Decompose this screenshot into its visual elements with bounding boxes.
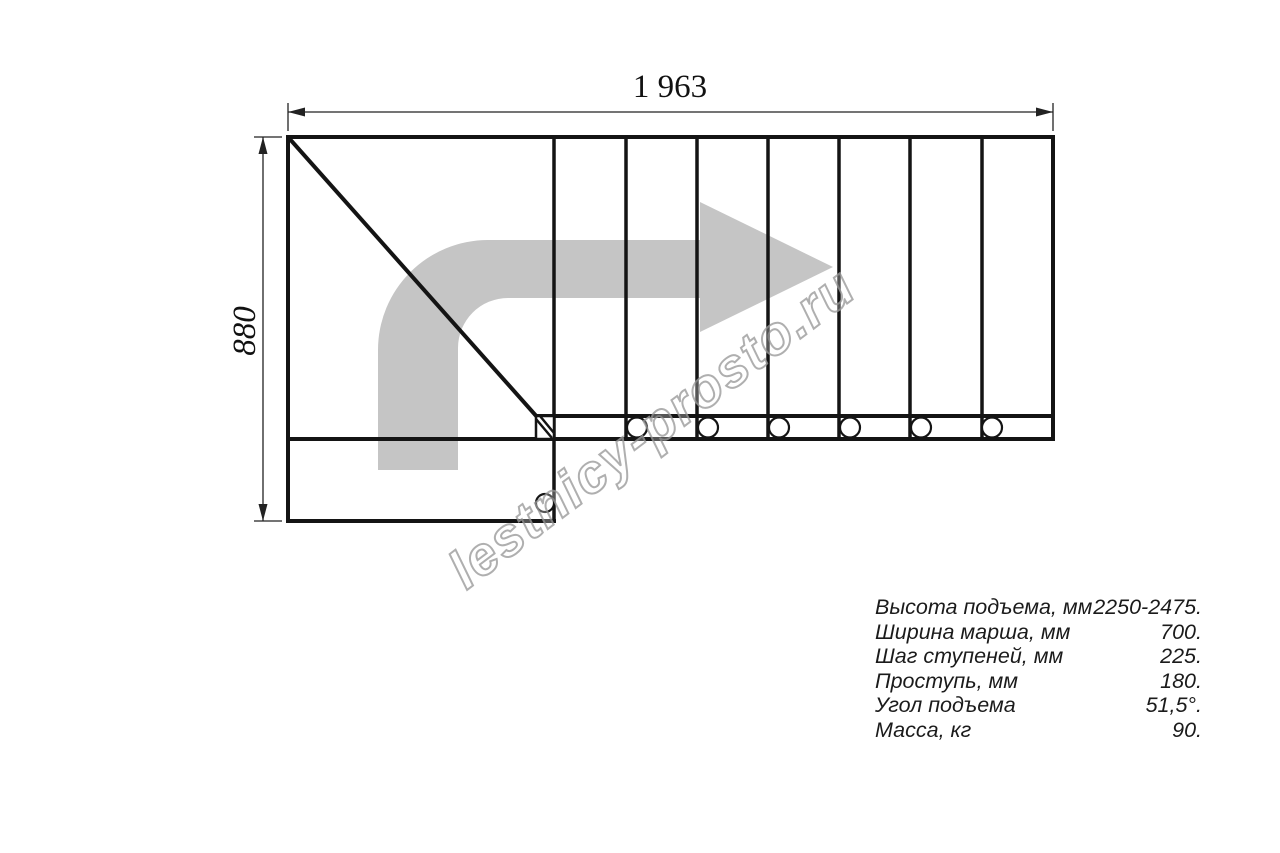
spec-label: Шаг ступеней, мм: [875, 644, 1063, 669]
spec-value: 90.: [1172, 718, 1202, 743]
dimension-arrowhead: [259, 137, 268, 154]
spec-row-angle: Угол подъема 51,5°.: [875, 693, 1202, 718]
staircase-drawing-page: 1 963 880 lestnicy-prosto.ru Высота подъ…: [0, 0, 1280, 853]
spec-label: Ширина марша, мм: [875, 620, 1070, 645]
spec-label: Высота подъема, мм: [875, 595, 1092, 620]
direction-arrow-icon: [378, 202, 833, 470]
dimension-arrowhead: [288, 108, 305, 117]
tread-lines: [554, 137, 982, 521]
spec-value: 2250-2475.: [1093, 595, 1202, 620]
baluster-circle: [698, 418, 718, 438]
dimension-length-label: 1 963: [633, 69, 707, 105]
spec-row-height: Высота подъема, мм 2250-2475.: [875, 595, 1202, 620]
spec-label: Масса, кг: [875, 718, 971, 743]
spec-value: 700.: [1160, 620, 1202, 645]
specs-table: Высота подъема, мм 2250-2475. Ширина мар…: [875, 595, 1202, 743]
spec-row-flight-width: Ширина марша, мм 700.: [875, 620, 1202, 645]
spec-row-tread-depth: Проступь, мм 180.: [875, 669, 1202, 694]
spec-row-step-pitch: Шаг ступеней, мм 225.: [875, 644, 1202, 669]
baluster-circle: [627, 418, 647, 438]
dimension-length: [288, 103, 1053, 131]
dimension-width-label: 880: [227, 306, 263, 356]
dimension-arrowhead: [259, 504, 268, 521]
baluster-circle: [911, 418, 931, 438]
dimension-arrowhead: [1036, 108, 1053, 117]
baluster-circle: [840, 418, 860, 438]
baluster-circle: [769, 418, 789, 438]
spec-label: Проступь, мм: [875, 669, 1018, 694]
entry-baluster-circle: [536, 494, 554, 512]
spec-value: 225.: [1160, 644, 1202, 669]
spec-label: Угол подъема: [875, 693, 1016, 718]
baluster-circles: [536, 418, 1002, 513]
spec-row-mass: Масса, кг 90.: [875, 718, 1202, 743]
newel-post: [536, 416, 554, 439]
baluster-circle: [982, 418, 1002, 438]
spec-value: 51,5°.: [1146, 693, 1202, 718]
spec-value: 180.: [1160, 669, 1202, 694]
